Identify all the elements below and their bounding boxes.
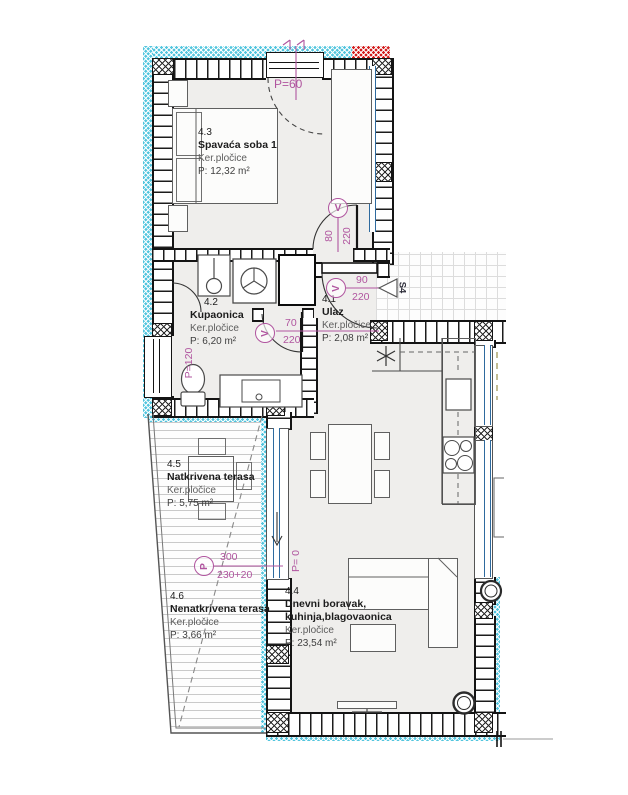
- sofa-chaise: [428, 558, 458, 648]
- door-symbol-bedroom: V: [328, 198, 348, 218]
- column-living-sw: [266, 712, 289, 733]
- living-east-window-2-glass: [484, 440, 491, 577]
- wall-living-south: [266, 712, 506, 737]
- room-area: P: 12,32 m²: [198, 165, 277, 178]
- room-name: Dnevni boravak,: [285, 598, 392, 611]
- room-id: 4.6: [170, 590, 270, 603]
- nightstand-2: [168, 205, 188, 232]
- wall-living-east-mid: [474, 577, 496, 605]
- terrace-chair-top: [198, 438, 226, 455]
- dim-terrace-door-parapet: P= 0: [290, 539, 302, 583]
- room-area: P: 2,08 m²: [322, 332, 371, 345]
- dim-terrace-top: 300: [220, 551, 238, 563]
- entry-shaft-closet: [278, 254, 316, 306]
- column-top-left: [152, 58, 174, 75]
- room-label-covered-terrace: 4.5 Natkrivena terasa Ker.pločice P: 5,7…: [167, 458, 255, 510]
- dim-bathroom-window-parapet: P=120: [183, 340, 195, 386]
- living-east-window-1-glass: [484, 345, 491, 425]
- room-area: P: 23,54 m²: [285, 637, 392, 650]
- column-living-east-2: [474, 602, 493, 619]
- wall-entry-door-jamb-right: [377, 262, 390, 278]
- room-name: Ulaz: [322, 306, 371, 319]
- dining-chair-1: [310, 432, 326, 460]
- room-name-line2: kuhinja,blagovaonica: [285, 611, 392, 624]
- room-area: P: 3,66 m²: [170, 629, 270, 642]
- column-living-se: [474, 712, 493, 733]
- tv: [337, 701, 397, 709]
- room-name: Nenatkrivena terasa: [170, 603, 270, 616]
- room-area: P: 5,75 m²: [167, 497, 255, 510]
- dim-bedroom-door-height: 220: [341, 223, 353, 249]
- column-bath-south-right: [266, 399, 285, 416]
- room-id: 4.3: [198, 126, 277, 139]
- dining-chair-2: [310, 470, 326, 498]
- dim-bathroom-door-height: 220: [283, 334, 301, 346]
- east-door-bracket: [494, 478, 504, 537]
- door-symbol-entry: V: [326, 278, 346, 298]
- door-symbol-glyph: V: [259, 330, 270, 337]
- door-symbol-glyph: V: [335, 203, 342, 214]
- room-label-bathroom: 4.2 Kupaonica Ker.pločice P: 6,20 m²: [190, 296, 244, 348]
- terrace-sliding-door-glass: [273, 428, 280, 578]
- dim-bedroom-door-width: 80: [323, 225, 335, 247]
- dining-chair-4: [374, 470, 390, 498]
- room-id: 4.5: [167, 458, 255, 471]
- wall-bath-inner-left: [252, 308, 264, 322]
- door-symbol-glyph: V: [330, 285, 341, 292]
- room-name: Natkrivena terasa: [167, 471, 255, 484]
- room-id: 4.4: [285, 585, 392, 598]
- dining-table: [328, 424, 372, 504]
- parapet-symbol-glyph: P: [198, 563, 209, 570]
- column-bath-south-left: [152, 399, 172, 416]
- column-living-north-right: [474, 321, 493, 341]
- room-finish: Ker.pločice: [167, 484, 255, 497]
- bathroom-window-glass-line: [153, 339, 160, 393]
- dim-entry-door-width: 90: [356, 274, 368, 286]
- kitchen-counter: [442, 338, 476, 505]
- dim-entry-door-height: 220: [352, 291, 370, 303]
- room-finish: Ker.pločice: [198, 152, 277, 165]
- room-finish: Ker.pločice: [190, 322, 244, 335]
- dim-bathroom-door-width: 70: [285, 317, 297, 329]
- dim-terrace-bottom: 230+20: [217, 569, 252, 581]
- parapet-symbol-terrace: P: [194, 556, 214, 576]
- room-finish: Ker.pločice: [322, 319, 371, 332]
- column-living-north-left: [370, 321, 388, 341]
- room-label-living: 4.4 Dnevni boravak, kuhinja,blagovaonica…: [285, 585, 392, 650]
- nightstand-1: [168, 80, 188, 107]
- entry-section-mark: S4: [396, 282, 407, 294]
- dim-bedroom-window-parapet: P=60: [274, 78, 302, 90]
- room-label-uncovered-terrace: 4.6 Nenatkrivena terasa Ker.pločice P: 3…: [170, 590, 270, 642]
- door-symbol-bathroom: V: [255, 323, 275, 343]
- wardrobe: [331, 69, 372, 204]
- dining-chair-3: [374, 432, 390, 460]
- room-label-bedroom: 4.3 Spavaća soba 1 Ker.pločice P: 12,32 …: [198, 126, 277, 178]
- floor-plan: 4.3 Spavaća soba 1 Ker.pločice P: 12,32 …: [0, 0, 628, 795]
- bedroom-window-glass-line: [269, 62, 319, 69]
- room-id: 4.2: [190, 296, 244, 309]
- room-area: P: 6,20 m²: [190, 335, 244, 348]
- room-name: Kupaonica: [190, 309, 244, 322]
- room-finish: Ker.pločice: [285, 624, 392, 637]
- wall-bedroom-south-right: [353, 248, 390, 262]
- room-finish: Ker.pločice: [170, 616, 270, 629]
- room-name: Spavaća soba 1: [198, 139, 277, 152]
